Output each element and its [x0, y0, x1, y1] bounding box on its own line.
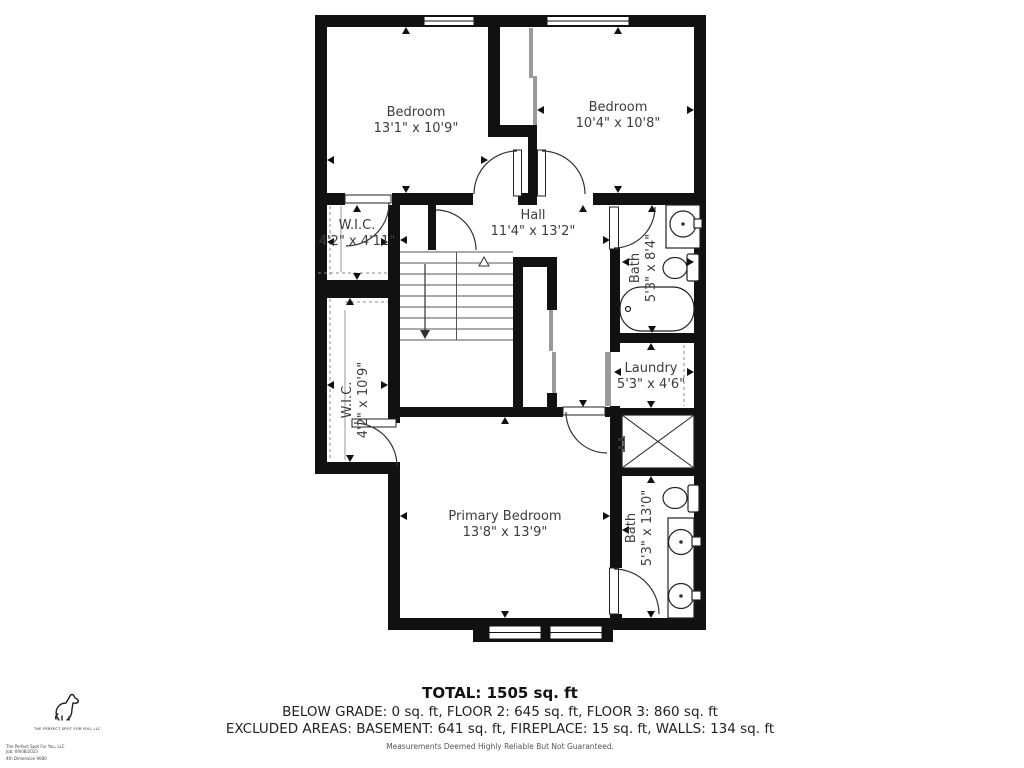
room-label-bath-2: Bath 5'3" x 13'0"	[624, 490, 656, 566]
room-name: Bath	[628, 234, 644, 302]
room-name: Primary Bedroom	[448, 509, 561, 525]
total-area-text: TOTAL: 1505 sq. ft	[0, 684, 1000, 702]
room-dims: 11'4" x 13'2"	[491, 224, 576, 240]
door-leaf	[514, 150, 522, 196]
room-name: Bath	[624, 490, 640, 566]
staircase	[400, 252, 513, 340]
floor-plan: Bedroom 13'1" x 10'9" Bedroom 10'4" x 10…	[0, 0, 1024, 768]
door-leaf	[563, 407, 605, 415]
room-dims: 4'2" x 10'9"	[356, 362, 372, 438]
room-name: Laundry	[617, 361, 685, 377]
floor-areas-text: BELOW GRADE: 0 sq. ft, FLOOR 2: 645 sq. …	[0, 704, 1000, 720]
hall-closet-slider-door	[549, 310, 553, 351]
room-label-primary-bedroom: Primary Bedroom 13'8" x 13'9"	[448, 509, 561, 541]
fine-print: The Perfect Spot For You, LLC Job: 09/08…	[6, 744, 65, 761]
closet-slider-door	[529, 28, 533, 78]
room-dims: 13'8" x 13'9"	[448, 525, 561, 541]
room-dims: 5'3" x 13'0"	[640, 490, 656, 566]
stairs-up-marker	[479, 257, 489, 266]
excluded-areas-text: EXCLUDED AREAS: BASEMENT: 641 sq. ft, FI…	[0, 721, 1000, 737]
room-label-wic-2: W.I.C. 4'2" x 10'9"	[340, 362, 372, 438]
floor-plan-drawing	[0, 0, 1024, 768]
toilet-icon	[663, 488, 687, 509]
room-dims: 10'4" x 10'8"	[576, 116, 661, 132]
room-label-bedroom-2: Bedroom 10'4" x 10'8"	[576, 100, 661, 132]
door-leaf	[345, 195, 391, 203]
faucet-icon	[694, 219, 702, 228]
door-leaf	[610, 568, 619, 614]
room-dims: 13'1" x 10'9"	[374, 121, 459, 137]
stairs-down-arrow	[420, 330, 430, 339]
room-label-hall: Hall 11'4" x 13'2"	[491, 208, 576, 240]
hall-closet-slider-door	[552, 352, 556, 393]
door-leaf	[538, 150, 546, 196]
company-logo: THE PERFECT SPOT FOR YOU, LLC	[34, 692, 98, 731]
room-label-wic-1: W.I.C. 4'2" x 4'11"	[319, 218, 395, 250]
room-dims: 5'3" x 8'4"	[644, 234, 660, 302]
door-arc	[474, 151, 517, 194]
toilet-tank	[687, 254, 699, 281]
faucet-icon	[692, 591, 701, 600]
toilet-tank	[688, 485, 699, 512]
room-dims: 4'2" x 4'11"	[319, 234, 395, 250]
door-leaf	[610, 207, 619, 249]
shower-valve-icon	[618, 438, 624, 441]
laundry-pocket-door	[605, 352, 611, 406]
door-arc	[614, 569, 659, 614]
dog-icon	[49, 692, 83, 722]
faucet-icon	[692, 537, 701, 546]
door-arc	[542, 151, 585, 194]
room-dims: 5'3" x 4'6"	[617, 377, 685, 393]
room-name: W.I.C.	[340, 362, 356, 438]
company-name: THE PERFECT SPOT FOR YOU, LLC	[34, 727, 98, 731]
tub-faucet-icon	[626, 307, 631, 312]
stair-direction-arrows	[420, 257, 489, 339]
room-name: Bedroom	[374, 105, 459, 121]
room-label-bath-1: Bath 5'3" x 8'4"	[628, 234, 660, 302]
disclaimer-text: Measurements Deemed Highly Reliable But …	[0, 742, 1000, 751]
door-arc	[566, 412, 607, 453]
room-name: W.I.C.	[319, 218, 395, 234]
closet-slider-door	[533, 76, 537, 125]
room-name: Hall	[491, 208, 576, 224]
door-arc	[436, 210, 476, 250]
room-label-bedroom-1: Bedroom 13'1" x 10'9"	[374, 105, 459, 137]
toilet-icon	[663, 258, 687, 279]
room-name: Bedroom	[576, 100, 661, 116]
room-label-laundry: Laundry 5'3" x 4'6"	[617, 361, 685, 393]
